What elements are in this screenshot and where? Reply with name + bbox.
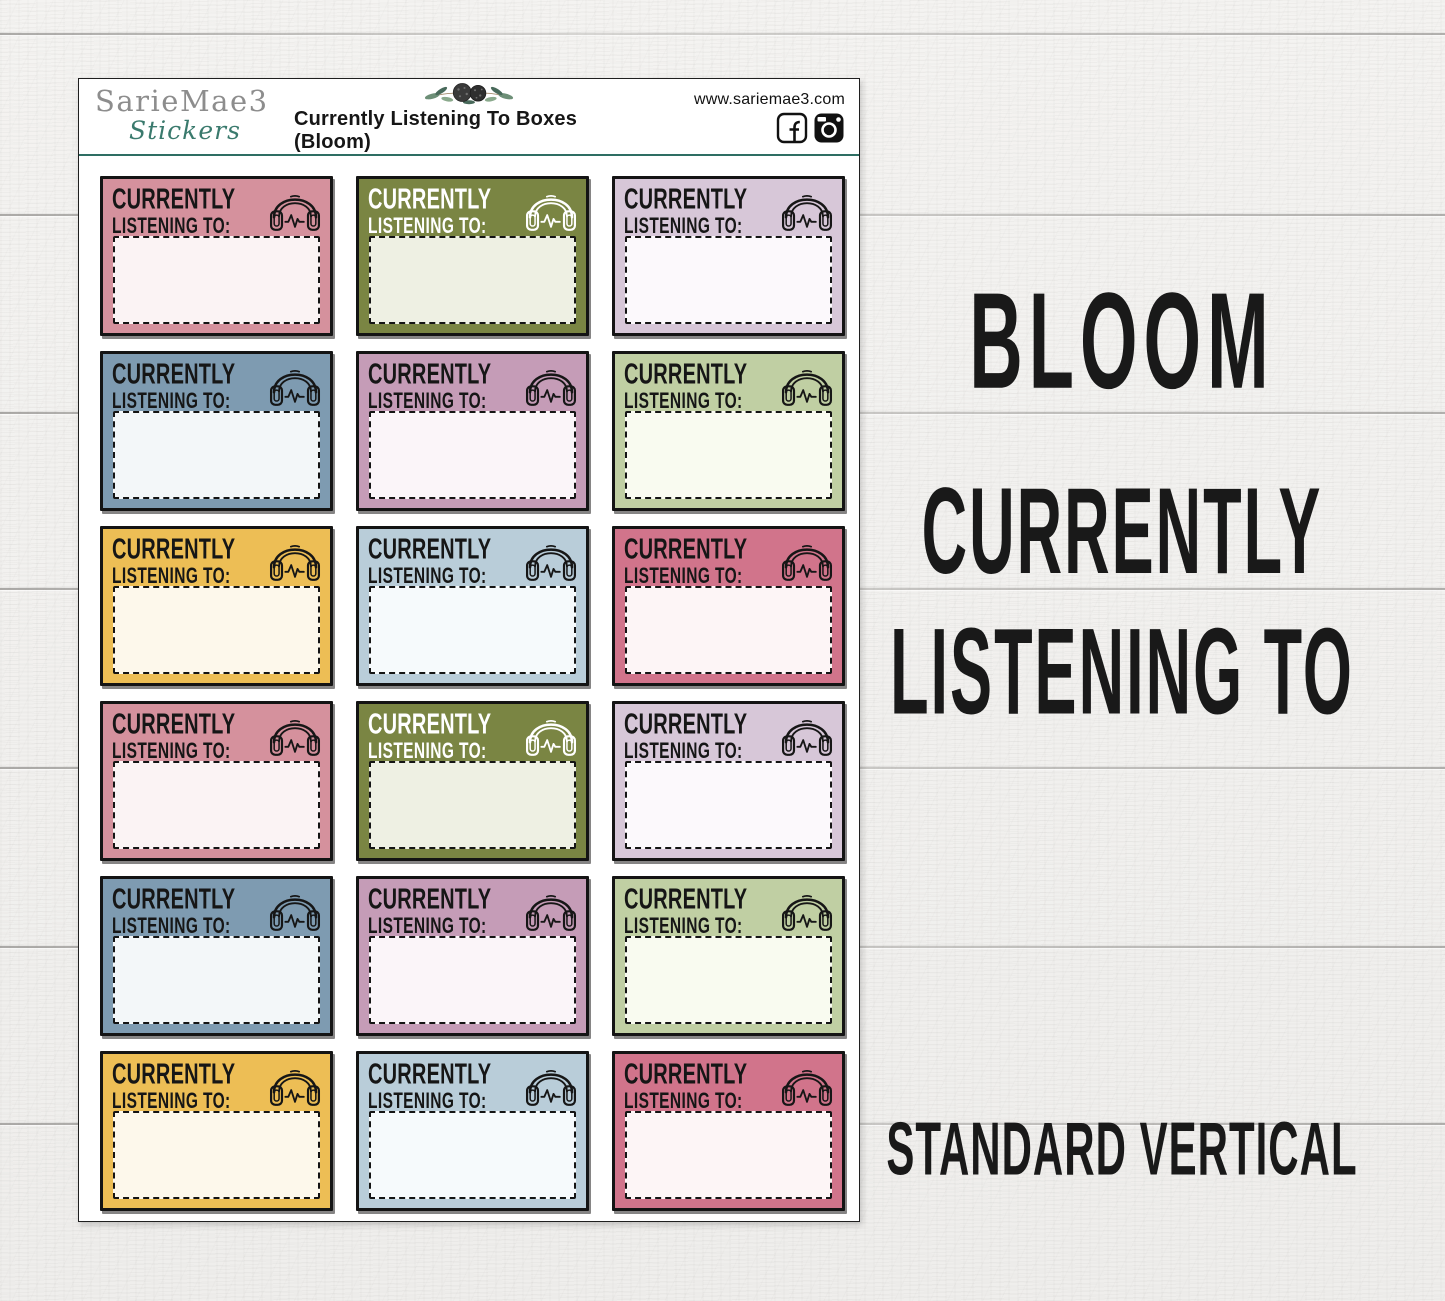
write-in-area: [369, 586, 576, 674]
sticker-grid: CURRENTLY LISTENING TO: CURRENTL: [79, 156, 859, 1221]
sticker-box-lightblue: CURRENTLY LISTENING TO:: [356, 526, 589, 686]
sticker-label: CURRENTLY LISTENING TO:: [368, 186, 491, 240]
write-in-area: [369, 236, 576, 324]
sticker-label-line1: CURRENTLY: [368, 886, 491, 914]
write-in-area: [625, 586, 832, 674]
headphones-icon: [524, 1062, 578, 1109]
instagram-icon: [813, 112, 845, 144]
sticker-label-line1: CURRENTLY: [624, 1061, 747, 1089]
sticker-header: CURRENTLY LISTENING TO:: [615, 529, 842, 584]
headphones-icon: [524, 887, 578, 934]
write-in-area: [369, 1111, 576, 1199]
sticker-label: CURRENTLY LISTENING TO:: [112, 361, 235, 415]
sticker-box-slate: CURRENTLY LISTENING TO:: [100, 351, 333, 511]
headphones-icon: [268, 362, 322, 409]
sticker-header: CURRENTLY LISTENING TO:: [615, 879, 842, 934]
sticker-label: CURRENTLY LISTENING TO:: [112, 186, 235, 240]
product-name-line1: CURRENTLY: [862, 464, 1382, 604]
headphones-icon: [780, 187, 834, 234]
product-name: CURRENTLY LISTENING TO: [862, 464, 1382, 744]
headphones-icon: [780, 712, 834, 759]
sticker-header: CURRENTLY LISTENING TO:: [103, 704, 330, 759]
sticker-label: CURRENTLY LISTENING TO:: [624, 1061, 747, 1115]
brand-subtitle: Stickers: [129, 118, 294, 144]
sticker-label: CURRENTLY LISTENING TO:: [368, 361, 491, 415]
headphones-icon: [268, 887, 322, 934]
sticker-label-line1: CURRENTLY: [624, 186, 747, 214]
sticker-header: CURRENTLY LISTENING TO:: [103, 354, 330, 409]
website-url: www.sariemae3.com: [644, 91, 845, 109]
write-in-area: [625, 936, 832, 1024]
sticker-label: CURRENTLY LISTENING TO:: [624, 361, 747, 415]
sticker-label-line1: CURRENTLY: [112, 186, 235, 214]
headphones-icon: [268, 712, 322, 759]
headphones-icon: [268, 537, 322, 584]
sticker-label-line1: CURRENTLY: [112, 361, 235, 389]
write-in-area: [113, 1111, 320, 1199]
sticker-box-sage: CURRENTLY LISTENING TO:: [612, 876, 845, 1036]
write-in-area: [113, 761, 320, 849]
sticker-sheet: SarieMae3 Stickers: [78, 78, 860, 1222]
product-photo: SarieMae3 Stickers: [0, 0, 1445, 1301]
write-in-area: [113, 586, 320, 674]
sticker-header: CURRENTLY LISTENING TO:: [103, 1054, 330, 1109]
sticker-header: CURRENTLY LISTENING TO:: [359, 354, 586, 409]
sticker-header: CURRENTLY LISTENING TO:: [615, 179, 842, 234]
sticker-box-sage: CURRENTLY LISTENING TO:: [612, 351, 845, 511]
headphones-icon: [268, 187, 322, 234]
sticker-header: CURRENTLY LISTENING TO:: [359, 529, 586, 584]
sticker-header: CURRENTLY LISTENING TO:: [103, 179, 330, 234]
sticker-label-line1: CURRENTLY: [624, 361, 747, 389]
headphones-icon: [268, 1062, 322, 1109]
write-in-area: [625, 761, 832, 849]
sticker-header: CURRENTLY LISTENING TO:: [615, 704, 842, 759]
sticker-label-line1: CURRENTLY: [112, 886, 235, 914]
floral-decoration-icon: [394, 82, 544, 106]
sticker-label: CURRENTLY LISTENING TO:: [368, 1061, 491, 1115]
sticker-label: CURRENTLY LISTENING TO:: [112, 536, 235, 590]
sticker-label-line1: CURRENTLY: [368, 711, 491, 739]
sticker-label: CURRENTLY LISTENING TO:: [624, 536, 747, 590]
sticker-header: CURRENTLY LISTENING TO:: [359, 179, 586, 234]
sticker-box-rose: CURRENTLY LISTENING TO:: [612, 1051, 845, 1211]
sticker-label: CURRENTLY LISTENING TO:: [112, 1061, 235, 1115]
sticker-box-lavender: CURRENTLY LISTENING TO:: [612, 176, 845, 336]
sticker-header: CURRENTLY LISTENING TO:: [359, 1054, 586, 1109]
headphones-icon: [524, 187, 578, 234]
sticker-box-slate: CURRENTLY LISTENING TO:: [100, 876, 333, 1036]
sticker-label: CURRENTLY LISTENING TO:: [368, 886, 491, 940]
sticker-header: CURRENTLY LISTENING TO:: [103, 879, 330, 934]
sticker-label-line1: CURRENTLY: [624, 886, 747, 914]
write-in-area: [369, 936, 576, 1024]
sticker-label: CURRENTLY LISTENING TO:: [368, 711, 491, 765]
sticker-label-line1: CURRENTLY: [368, 186, 491, 214]
sticker-header: CURRENTLY LISTENING TO:: [359, 879, 586, 934]
product-name-line2: LISTENING TO: [862, 604, 1382, 744]
write-in-area: [625, 411, 832, 499]
sticker-label: CURRENTLY LISTENING TO:: [368, 536, 491, 590]
brand-name: SarieMae3: [95, 87, 294, 116]
right-caption-panel: BLOOM CURRENTLY LISTENING TO STANDARD VE…: [862, 0, 1382, 1301]
sticker-box-gold: CURRENTLY LISTENING TO:: [100, 526, 333, 686]
headphones-icon: [524, 362, 578, 409]
headphones-icon: [780, 362, 834, 409]
headphones-icon: [780, 1062, 834, 1109]
variant-label: STANDARD VERTICAL: [862, 1106, 1382, 1192]
sticker-box-lightblue: CURRENTLY LISTENING TO:: [356, 1051, 589, 1211]
sticker-label-line1: CURRENTLY: [368, 1061, 491, 1089]
headphones-icon: [524, 537, 578, 584]
sticker-box-olive: CURRENTLY LISTENING TO:: [356, 176, 589, 336]
write-in-area: [113, 936, 320, 1024]
sticker-box-pink: CURRENTLY LISTENING TO:: [100, 701, 333, 861]
facebook-icon: [776, 112, 808, 144]
sticker-label: CURRENTLY LISTENING TO:: [624, 886, 747, 940]
sheet-header: SarieMae3 Stickers: [79, 79, 859, 156]
headphones-icon: [780, 537, 834, 584]
sticker-header: CURRENTLY LISTENING TO:: [103, 529, 330, 584]
sticker-label-line1: CURRENTLY: [624, 536, 747, 564]
sticker-box-gold: CURRENTLY LISTENING TO:: [100, 1051, 333, 1211]
sticker-box-mauve: CURRENTLY LISTENING TO:: [356, 876, 589, 1036]
sheet-header-center: Currently Listening To Boxes (Bloom): [294, 79, 644, 154]
sticker-label-line1: CURRENTLY: [112, 536, 235, 564]
sticker-header: CURRENTLY LISTENING TO:: [615, 354, 842, 409]
write-in-area: [113, 236, 320, 324]
sticker-label-line1: CURRENTLY: [368, 361, 491, 389]
sticker-box-rose: CURRENTLY LISTENING TO:: [612, 526, 845, 686]
sticker-box-pink: CURRENTLY LISTENING TO:: [100, 176, 333, 336]
sticker-label-line1: CURRENTLY: [112, 1061, 235, 1089]
collection-name: BLOOM: [862, 262, 1382, 419]
sticker-header: CURRENTLY LISTENING TO:: [359, 704, 586, 759]
sticker-label: CURRENTLY LISTENING TO:: [624, 711, 747, 765]
sticker-box-olive: CURRENTLY LISTENING TO:: [356, 701, 589, 861]
headphones-icon: [524, 712, 578, 759]
headphones-icon: [780, 887, 834, 934]
sticker-label: CURRENTLY LISTENING TO:: [624, 186, 747, 240]
social-icons: [644, 112, 845, 144]
sheet-header-right: www.sariemae3.com: [644, 79, 859, 154]
sheet-title: Currently Listening To Boxes (Bloom): [294, 108, 644, 154]
sticker-label: CURRENTLY LISTENING TO:: [112, 711, 235, 765]
sticker-label-line1: CURRENTLY: [112, 711, 235, 739]
write-in-area: [113, 411, 320, 499]
sticker-header: CURRENTLY LISTENING TO:: [615, 1054, 842, 1109]
sticker-box-lavender: CURRENTLY LISTENING TO:: [612, 701, 845, 861]
sticker-label-line1: CURRENTLY: [368, 536, 491, 564]
write-in-area: [625, 236, 832, 324]
sticker-label: CURRENTLY LISTENING TO:: [112, 886, 235, 940]
sticker-label-line1: CURRENTLY: [624, 711, 747, 739]
brand-logo: SarieMae3 Stickers: [79, 79, 294, 154]
write-in-area: [625, 1111, 832, 1199]
write-in-area: [369, 761, 576, 849]
write-in-area: [369, 411, 576, 499]
sticker-box-mauve: CURRENTLY LISTENING TO:: [356, 351, 589, 511]
